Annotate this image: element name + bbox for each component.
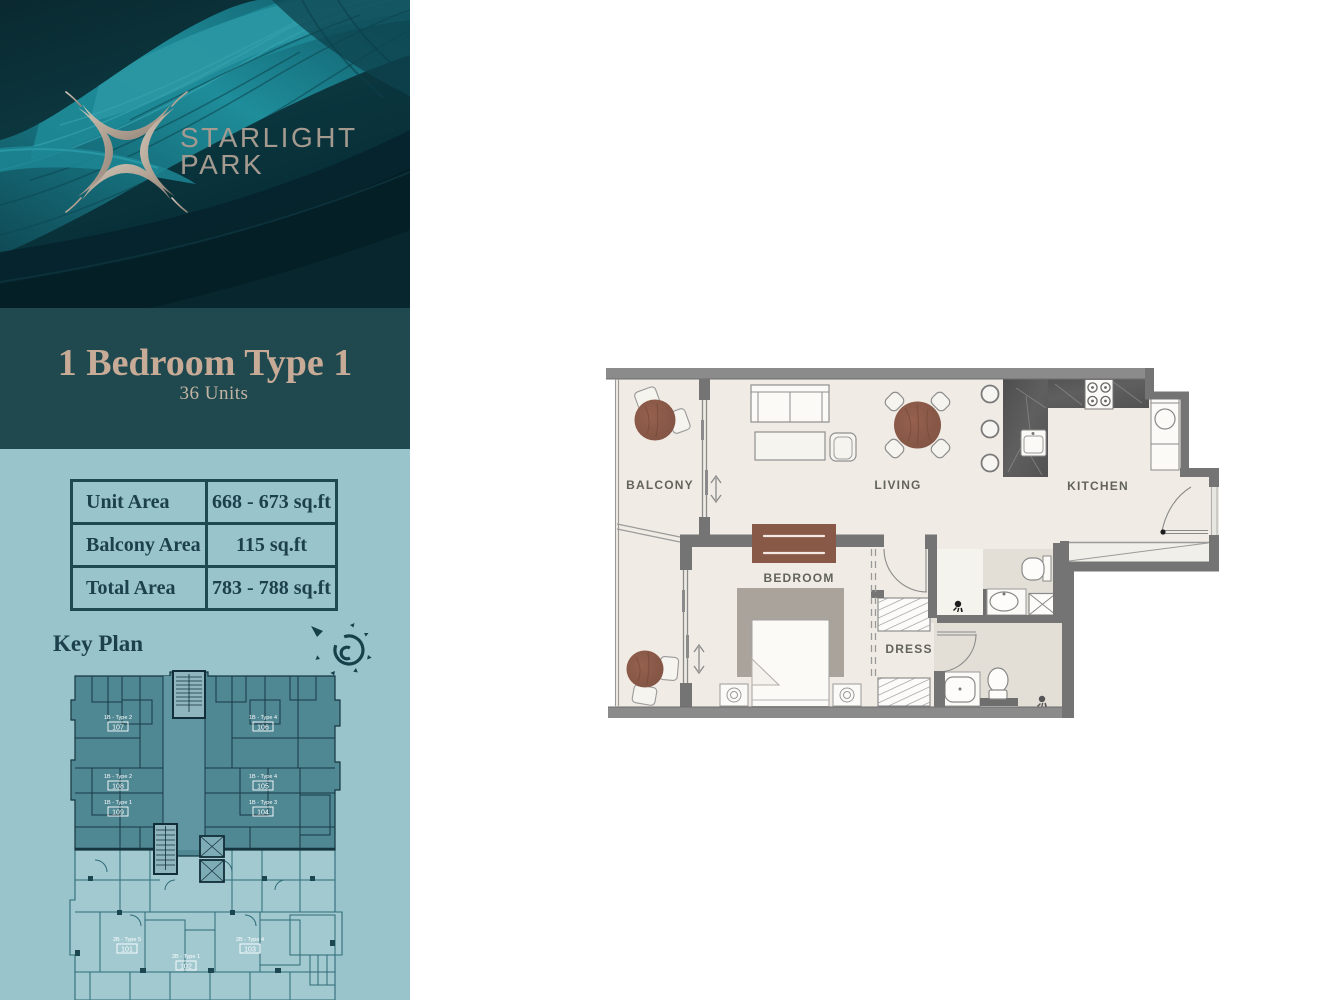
svg-text:105: 105: [257, 784, 269, 791]
svg-text:101: 101: [121, 947, 133, 954]
svg-text:107: 107: [112, 725, 124, 732]
svg-text:PARK: PARK: [180, 149, 264, 180]
svg-text:DRESS: DRESS: [885, 642, 932, 656]
svg-text:103: 103: [244, 947, 256, 954]
svg-text:1B - Type 4: 1B - Type 4: [249, 715, 277, 721]
svg-text:2B - Type 1: 2B - Type 1: [172, 954, 200, 960]
svg-text:2B - Type 5: 2B - Type 5: [113, 937, 141, 943]
svg-text:1B - Type 4: 1B - Type 4: [249, 774, 277, 780]
svg-text:KITCHEN: KITCHEN: [1067, 479, 1129, 493]
svg-text:109: 109: [112, 810, 124, 817]
svg-text:106: 106: [257, 725, 269, 732]
svg-text:108: 108: [112, 784, 124, 791]
svg-text:LIVING: LIVING: [874, 478, 921, 492]
svg-text:1B - Type 2: 1B - Type 2: [104, 715, 132, 721]
svg-text:102: 102: [180, 964, 192, 971]
svg-text:1B - Type 2: 1B - Type 2: [104, 774, 132, 780]
svg-text:1B - Type 1: 1B - Type 1: [104, 800, 132, 806]
svg-text:BEDROOM: BEDROOM: [763, 571, 834, 585]
svg-text:1B - Type 3: 1B - Type 3: [249, 800, 277, 806]
svg-text:2B - Type 4: 2B - Type 4: [236, 937, 264, 943]
svg-text:104: 104: [257, 810, 269, 817]
svg-text:BALCONY: BALCONY: [626, 478, 694, 492]
